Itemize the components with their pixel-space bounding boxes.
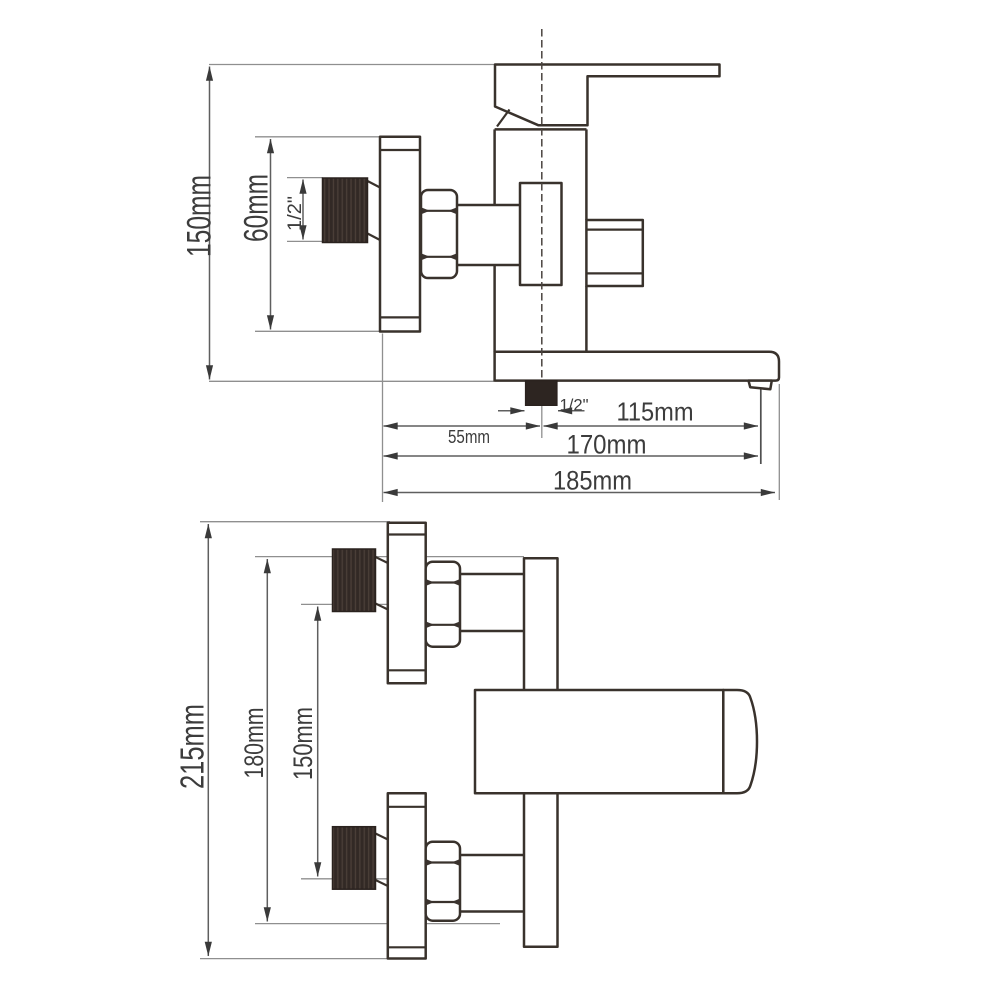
lever-handle: [495, 65, 720, 126]
dimension-offset-55mm: 55mm: [448, 427, 490, 447]
threaded-tail-piece: [323, 178, 368, 243]
plan-faucet-body: [475, 558, 757, 946]
threaded-tail-piece-lower: [333, 827, 376, 890]
cartridge-cap: [520, 183, 562, 285]
dimension-bottom-thread-half-inch: 1/2": [560, 396, 589, 415]
plan-view-dimensions: 215mm 180mm 150mm: [174, 524, 319, 956]
spout-block: [475, 690, 723, 793]
dimension-width-180mm: 180mm: [239, 708, 269, 779]
drawing-canvas: 150mm 60mm 1/2" 115mm 55mm 170mm 185mm 1…: [0, 0, 1000, 1000]
aerator-tab: [749, 381, 772, 390]
plan-upper-wall-connector: [333, 523, 527, 684]
dimension-width-215mm: 215mm: [174, 704, 211, 789]
side-faucet-body: [495, 29, 779, 405]
hex-nut: [421, 190, 457, 278]
dimension-reach-170mm: 170mm: [567, 430, 647, 460]
wall-escutcheon-plate: [380, 137, 420, 332]
side-wall-connector: [323, 137, 521, 332]
faucet-dimension-drawing: 150mm 60mm 1/2" 115mm 55mm 170mm 185mm 1…: [0, 0, 1000, 1000]
wall-escutcheon-plate-upper: [388, 523, 426, 684]
plan-view: 215mm 180mm 150mm: [174, 522, 758, 959]
spout: [495, 352, 779, 381]
dimension-height-150mm: 150mm: [181, 175, 219, 257]
threaded-tail-piece-upper: [333, 549, 376, 612]
side-view: 150mm 60mm 1/2" 115mm 55mm 170mm 185mm 1…: [181, 29, 780, 502]
dimension-reach-115mm: 115mm: [617, 397, 694, 427]
dimension-centers-150mm: 150mm: [288, 707, 318, 780]
dimension-escutcheon-60mm: 60mm: [238, 174, 276, 242]
spout-end-cap: [723, 690, 757, 793]
side-view-dimensions: 150mm 60mm 1/2" 115mm 55mm 170mm 185mm 1…: [181, 67, 776, 496]
dimension-reach-185mm: 185mm: [553, 466, 632, 496]
plan-lower-wall-connector: [333, 793, 527, 958]
hex-nut-upper: [426, 562, 460, 647]
dimension-side-thread-half-inch: 1/2": [285, 196, 306, 231]
wall-escutcheon-plate-lower: [388, 793, 426, 958]
hex-nut-lower: [426, 842, 460, 921]
bottom-outlet-thread: [526, 381, 558, 406]
